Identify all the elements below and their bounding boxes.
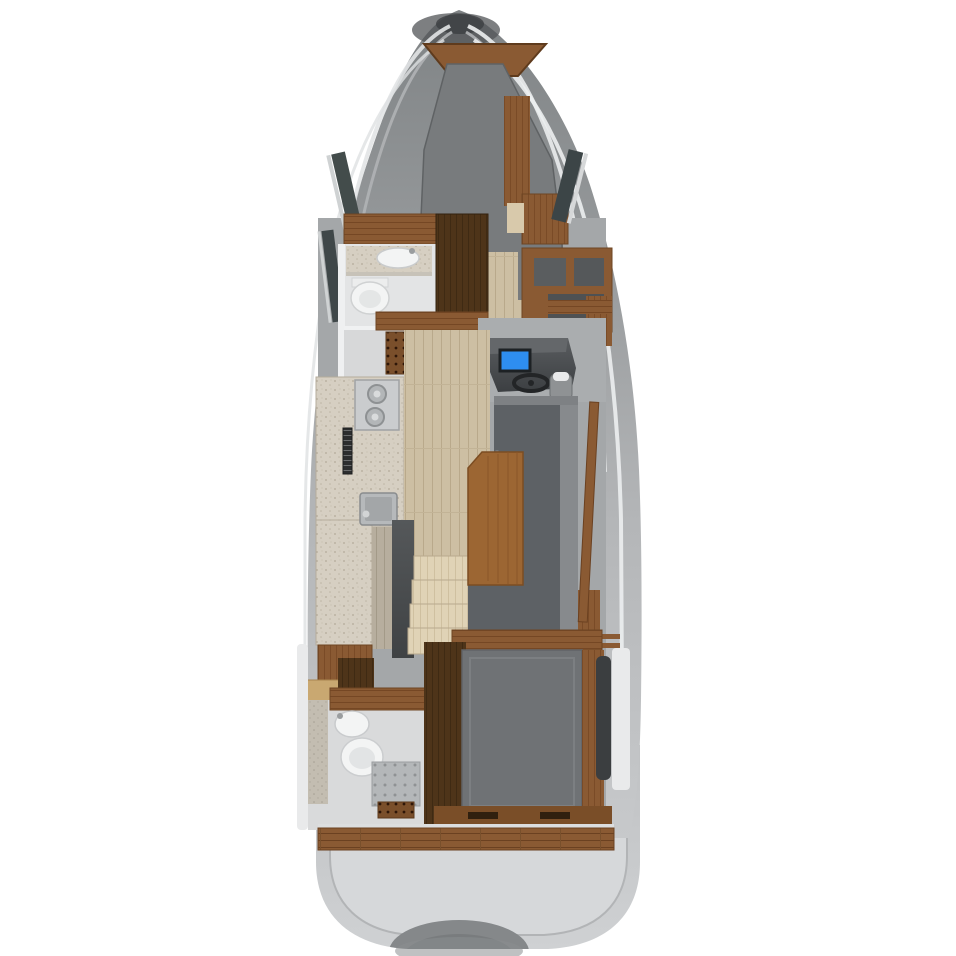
bow-floor-planks-side [488, 252, 518, 304]
stair-tread-1 [414, 556, 468, 580]
helm-wood-wall [548, 300, 612, 314]
aft-bath-speckle-wall [306, 700, 328, 804]
galley-counter-aft [316, 520, 372, 645]
wardrobe-cabinet [436, 214, 488, 318]
aft-bath-top-cabinet [330, 688, 426, 710]
galley-sink [360, 493, 397, 525]
bulkhead-wood-band [376, 312, 488, 330]
u-sofa-backrest [560, 396, 578, 642]
transom-handle-slot-2 [540, 812, 570, 819]
u-sofa-backrest-top [494, 396, 578, 405]
bow-side-cabinet-panel [504, 96, 530, 206]
aft-toilet-seat [349, 747, 375, 769]
transom-handle-slot-1 [468, 812, 498, 819]
steering-wheel-hub [528, 380, 534, 386]
cockpit-white-seam [318, 824, 614, 828]
stair-tread-3 [410, 604, 468, 628]
two-burner-stove [355, 380, 399, 430]
cockpit-teak-step [318, 828, 614, 850]
stbd-aft-window-frame [596, 656, 611, 780]
fwd-sink-faucet [409, 248, 415, 254]
aft-shower-tile [372, 762, 420, 806]
dining-table [468, 452, 523, 585]
fwd-toilet-seat [359, 290, 381, 308]
stair-tread-2 [412, 580, 468, 604]
chartplotter-screen [500, 350, 530, 371]
nav-shelf-cell-1 [534, 258, 566, 286]
fwd-bath-shelf-divider [346, 272, 432, 276]
cockpit [318, 824, 614, 850]
bow-floor-patch [507, 203, 524, 233]
port-aft-light-band [297, 644, 308, 830]
fwd-bath-left-wall [338, 244, 345, 378]
floorplan-canvas [0, 0, 956, 956]
aft-shower-teak-grate [378, 802, 414, 818]
galley-vent-grille [343, 428, 352, 474]
aft-cabin [424, 642, 612, 838]
nav-shelf-cell-2 [574, 258, 604, 286]
aft-sink-faucet [337, 713, 343, 719]
salon-aft-wood-shelf [452, 630, 602, 650]
aft-bathroom [306, 688, 426, 830]
stbd-aft-light-band [612, 648, 630, 790]
aft-berth-mattress [462, 650, 582, 814]
yacht-floorplan-render [0, 0, 956, 956]
